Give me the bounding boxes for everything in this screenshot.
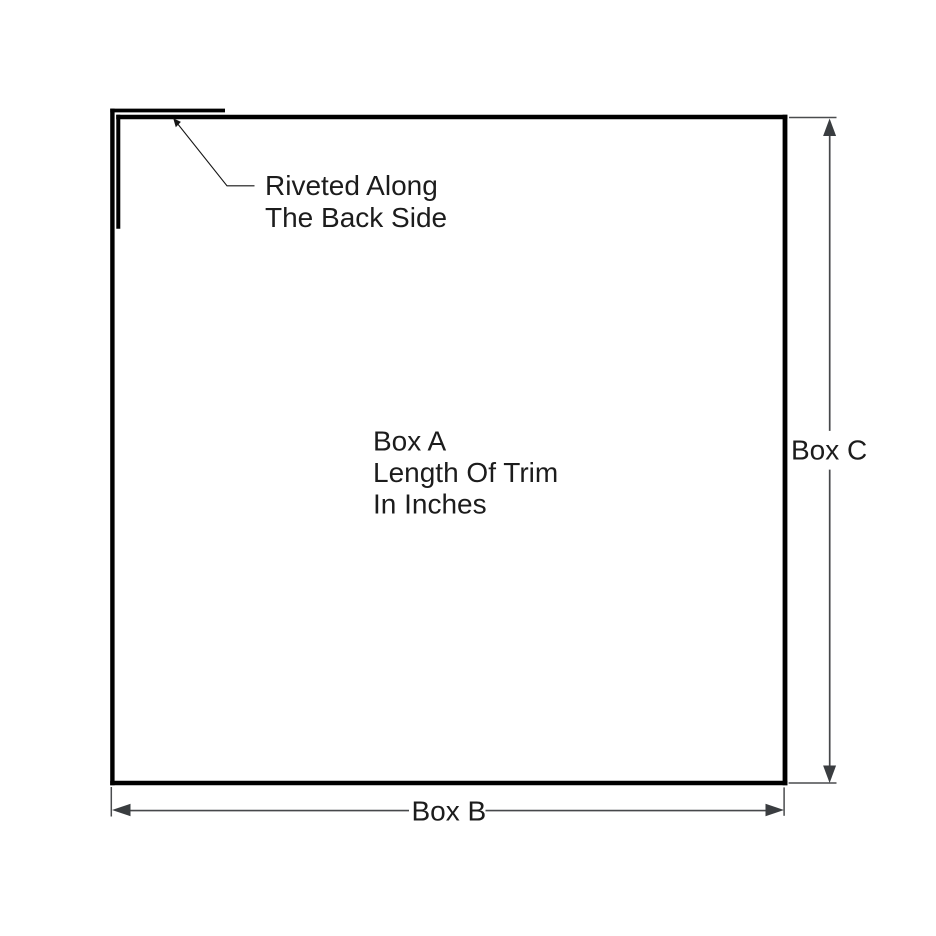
svg-text:Box A: Box A	[373, 425, 446, 456]
svg-text:Riveted Along: Riveted Along	[265, 170, 438, 201]
svg-text:Length Of Trim: Length Of Trim	[373, 457, 558, 488]
svg-text:In Inches: In Inches	[373, 488, 487, 519]
svg-text:Box B: Box B	[412, 795, 487, 826]
svg-text:Box C: Box C	[791, 434, 867, 465]
svg-text:The Back Side: The Back Side	[265, 202, 447, 233]
